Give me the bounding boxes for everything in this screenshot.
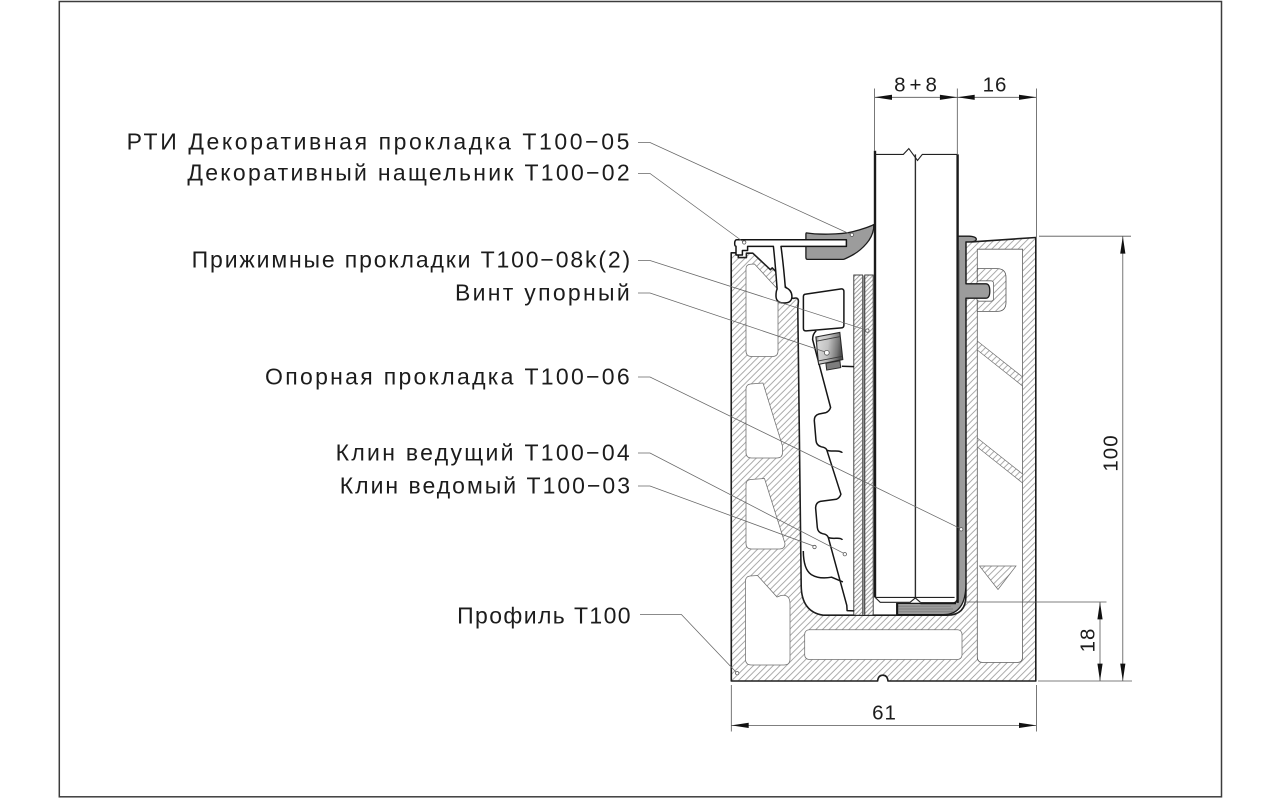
- svg-text:Винт упорный: Винт упорный: [455, 279, 632, 305]
- svg-text:РТИ Декоративная прокладка Т10: РТИ Декоративная прокладка Т100−05: [127, 128, 632, 154]
- svg-text:Клин ведомый Т100−03: Клин ведомый Т100−03: [340, 472, 632, 498]
- svg-text:Прижимные прокладки Т100−08k(2: Прижимные прокладки Т100−08k(2): [192, 246, 632, 272]
- svg-text:100: 100: [1100, 434, 1123, 471]
- svg-text:18: 18: [1077, 628, 1100, 653]
- svg-text:16: 16: [983, 74, 1008, 97]
- svg-text:Профиль Т100: Профиль Т100: [457, 602, 632, 628]
- svg-text:Декоративный нащельник Т100−02: Декоративный нащельник Т100−02: [187, 159, 632, 185]
- svg-text:Клин ведущий Т100−04: Клин ведущий Т100−04: [336, 439, 632, 465]
- svg-text:8+8: 8+8: [894, 74, 941, 97]
- svg-text:Опорная прокладка Т100−06: Опорная прокладка Т100−06: [265, 363, 632, 389]
- svg-text:61: 61: [872, 702, 897, 725]
